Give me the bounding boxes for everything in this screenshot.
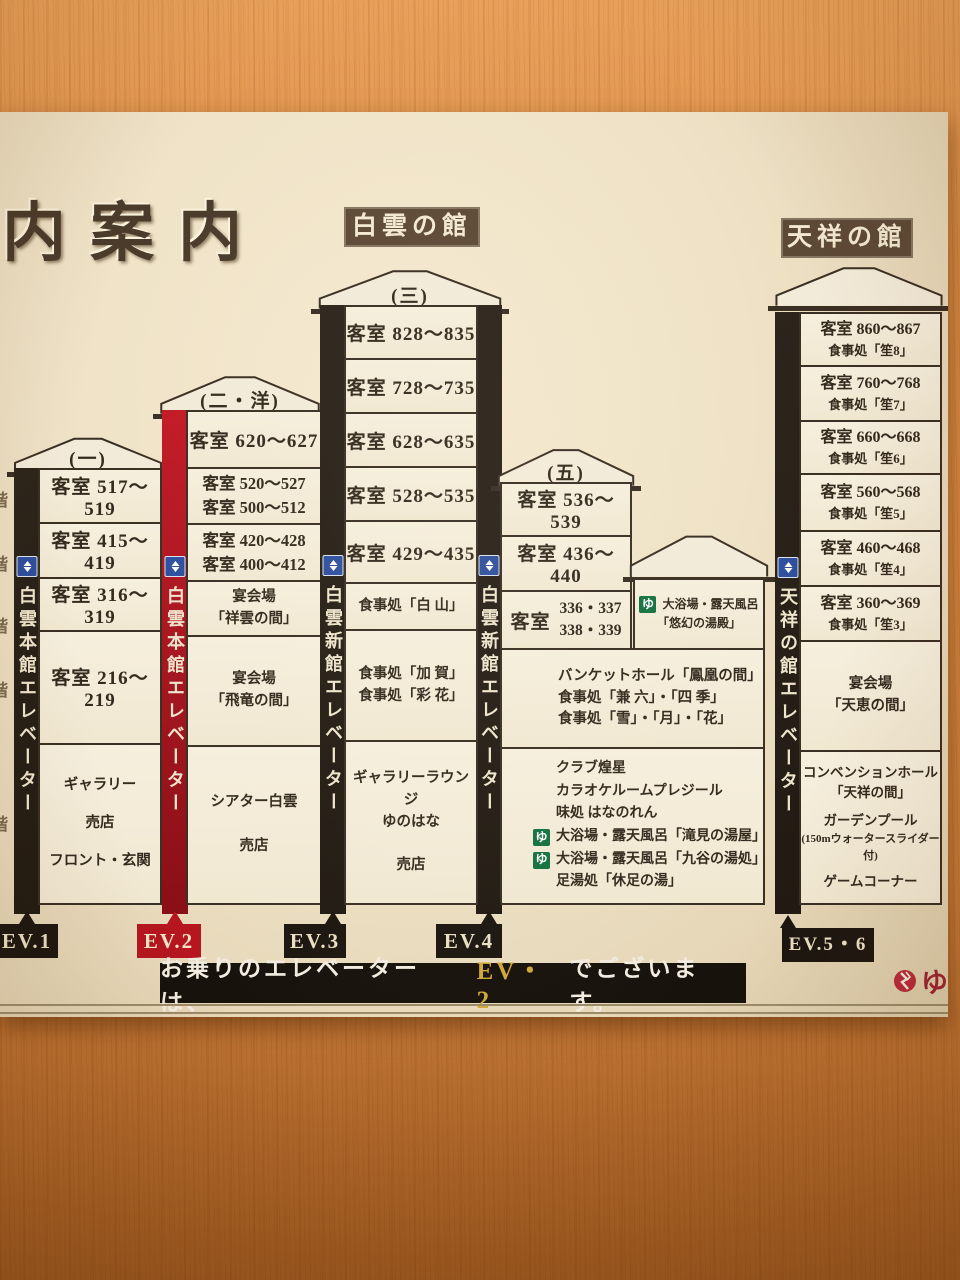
elevator-icon	[17, 556, 38, 577]
floor-box: 客室 860〜867 食事処「笙8」	[799, 312, 942, 367]
tower1-elevator-bar: 白雲本館エレベーター	[14, 468, 40, 914]
floor-box: 客室 660〜668 食事処「笙6」	[799, 420, 942, 475]
floor-text: 味処 はなのれん	[556, 803, 658, 826]
ev2-pointer	[167, 911, 183, 924]
floor-text: 客室 628〜635	[347, 427, 476, 454]
floor-text: 「祥雲の間」	[211, 609, 298, 631]
floor-text: 客室 360〜369	[820, 593, 920, 615]
floor-text: 食事処「笙7」	[828, 396, 913, 414]
floor-box: 客室 436〜440	[500, 535, 632, 592]
ev3-pointer	[325, 911, 341, 924]
floor-box: 宴会場 「天恵の間」	[799, 640, 942, 752]
tower3-elevator-bar-left: 白雲新館エレベーター	[320, 305, 346, 914]
floor-box: シアター白雲 売店	[186, 745, 322, 905]
floor-marker: 階	[0, 810, 8, 835]
floor-text: ギャラリー	[64, 775, 137, 797]
bath-icon: ゆ	[639, 596, 656, 613]
floor-text: 客室 728〜735	[347, 373, 476, 400]
floor-text: 客室 517〜519	[40, 472, 160, 521]
ev4-pointer	[481, 911, 497, 924]
floor-text: 客室 400〜412	[202, 553, 305, 577]
floor-box: ギャラリー 売店 フロント・玄関	[38, 743, 162, 905]
floor-text: 客室 316〜319	[40, 580, 160, 629]
amusement-section: クラブ煌星 カラオケルームプレジール 味処 はなのれん ゆ大浴場・露天風呂「滝見…	[500, 747, 765, 905]
tower3-roof-label: (三)	[316, 281, 504, 308]
building-badge-tensho: 天祥の館	[781, 218, 913, 258]
ev56-pointer	[780, 915, 796, 928]
floor-text: 客室 420〜428	[202, 529, 305, 553]
floor-text: 客室 560〜568	[820, 482, 920, 504]
floor-text: 売店	[240, 836, 269, 858]
floor-text: 「天恵の間」	[827, 696, 914, 718]
floor-box: 客室 520〜527 客室 500〜512	[186, 467, 322, 525]
floor-marker: 階	[0, 676, 8, 701]
floor-text: 食事処「兼 六」・「四 季」	[558, 688, 725, 710]
elevator-icon	[165, 556, 186, 577]
tower5-roof	[773, 264, 945, 307]
floor-box: 客室 620〜627	[186, 410, 322, 469]
tower1-roof-label: (一)	[12, 444, 164, 471]
floor-text: 大浴場・露天風呂「九谷の湯処」	[556, 849, 763, 872]
floor-text: 客室 828〜835	[347, 319, 476, 346]
floor-text: 客室 460〜468	[820, 538, 920, 560]
tower2-elevator-label: 白雲本館エレベーター	[162, 586, 188, 816]
floor-text: 売店	[397, 855, 426, 877]
floor-text: 食事処「雪」・「月」・「花」	[558, 709, 732, 731]
floor-box: 客室 560〜568 食事処「笙5」	[799, 473, 942, 532]
floor-text: バンケットホール「鳳凰の間」	[558, 666, 762, 688]
hotel-logo: ゆ	[892, 961, 948, 1000]
ev1-pointer	[19, 911, 35, 924]
elevator-icon	[778, 557, 799, 578]
tower2-roof-label: (二・洋)	[158, 386, 322, 413]
sign-bottom-edge	[0, 1004, 948, 1014]
floor-box: 客室 429〜435	[344, 520, 478, 584]
floor-text: 大浴場・露天風呂	[662, 595, 758, 614]
floor-marker: 階	[0, 550, 8, 575]
hotel-floor-guide-sign: 内案内 白雲の館 天祥の館 階 階 階 階 階 (一) 白雲本館エレベーター 客…	[0, 112, 948, 1017]
floor-text: 宴会場	[232, 587, 276, 609]
floor-marker: 階	[0, 612, 8, 637]
floor-text: クラブ煌星	[556, 758, 626, 781]
floor-text: 宴会場	[849, 674, 893, 696]
tower4-roof-label: (五)	[496, 458, 636, 485]
floor-text: 客室 620〜627	[190, 426, 319, 453]
floor-text: 売店	[86, 813, 115, 835]
floor-text: 客室 216〜219	[40, 663, 160, 712]
floor-text: 客室 760〜768	[820, 373, 920, 395]
banquet-section: バンケットホール「鳳凰の間」 食事処「兼 六」・「四 季」 食事処「雪」・「月」…	[500, 648, 765, 749]
floor-box: 客室 528〜535	[344, 466, 478, 522]
floor-text: 客室 500〜512	[202, 496, 305, 520]
floor-text: 足湯処「休足の湯」	[556, 871, 682, 894]
floor-box: 客室 828〜835	[344, 305, 478, 360]
floor-text: 食事処「笙8」	[828, 342, 913, 360]
floor-text: 大浴場・露天風呂「滝見の湯屋」	[556, 826, 763, 849]
ev56-badge: EV.5・6	[782, 928, 874, 962]
photo-wood-wall: 内案内 白雲の館 天祥の館 階 階 階 階 階 (一) 白雲本館エレベーター 客…	[0, 0, 960, 1280]
hotel-logo-text: ゆ	[921, 961, 948, 1000]
floor-text: フロント・玄関	[49, 851, 151, 873]
floor-box: 客室 415〜419	[38, 522, 162, 579]
tower2-roof: (二・洋)	[158, 373, 322, 415]
hotel-crest-icon	[892, 968, 918, 994]
floor-text: ギャラリーラウンジ	[346, 768, 476, 812]
tower3-elevator-label-left: 白雲新館エレベーター	[320, 585, 346, 815]
floor-text: 食事処「彩 花」	[358, 686, 463, 708]
floor-box: 客室 760〜768 食事処「笙7」	[799, 365, 942, 422]
floor-text: 客室 415〜419	[40, 526, 160, 575]
floor-marker: 階	[0, 486, 8, 511]
floor-box: 食事処「白 山」	[344, 582, 478, 631]
floor-text: 客室 436〜440	[502, 539, 630, 588]
floor-box: 宴会場 「飛竜の間」	[186, 635, 322, 747]
floor-text: 客室	[510, 607, 550, 634]
annex-bath-box: ゆ大浴場・露天風呂 「悠幻の湯殿」	[633, 578, 765, 650]
floor-box: 客室 460〜468 食事処「笙4」	[799, 530, 942, 587]
floor-text: 食事処「笙3」	[828, 616, 913, 634]
tower3-roof: (三)	[316, 267, 504, 310]
floor-text: 338・339	[560, 620, 622, 642]
floor-text: 客室 429〜435	[347, 539, 476, 566]
bath-icon: ゆ	[533, 852, 550, 869]
floor-box: 客室 628〜635	[344, 412, 478, 468]
elevator-notice-banner: お乗りのエレベーターは、 EV・2 でございます。	[160, 963, 746, 1003]
floor-text: カラオケルームプレジール	[556, 781, 723, 804]
floor-text: 客室 528〜535	[347, 481, 476, 508]
floor-text: 宴会場	[232, 669, 276, 691]
floor-text: 「悠幻の湯殿」	[657, 614, 741, 633]
floor-box: 客室 360〜369 食事処「笙3」	[799, 585, 942, 642]
annex-bath-roof	[628, 532, 770, 578]
tower5-elevator-label: 天祥の館エレベーター	[775, 587, 801, 817]
tower2-elevator-bar: 白雲本館エレベーター	[162, 410, 188, 914]
floor-box: 客室 316〜319	[38, 577, 162, 632]
floor-text: 食事処「白 山」	[358, 596, 463, 618]
floor-text: 食事処「加 賀」	[358, 664, 463, 686]
tower1-elevator-label: 白雲本館エレベーター	[14, 586, 40, 816]
floor-text: 食事処「笙6」	[828, 450, 913, 468]
floor-text: 客室 860〜867	[820, 319, 920, 341]
ev1-badge: EV.1	[0, 924, 58, 958]
floor-box: 宴会場 「祥雲の間」	[186, 580, 322, 637]
floor-text: ガーデンプール	[823, 811, 917, 831]
floor-text: 客室 520〜527	[202, 472, 305, 496]
floor-box: 客室 517〜519	[38, 468, 162, 524]
floor-text: 食事処「笙4」	[828, 561, 913, 579]
sign-title: 内案内	[2, 182, 266, 274]
floor-box: 客室 336・337 338・339	[500, 590, 632, 650]
floor-text: 客室 536〜539	[502, 485, 630, 534]
floor-text: 食事処「笙5」	[828, 505, 913, 523]
floor-text: 「天祥の間」	[830, 783, 911, 803]
floor-text: 「飛竜の間」	[211, 691, 298, 713]
elevator-icon	[323, 555, 344, 576]
floor-box: 客室 536〜539	[500, 482, 632, 537]
floor-text: シアター白雲	[211, 792, 298, 814]
floor-box: 食事処「加 賀」 食事処「彩 花」	[344, 629, 478, 742]
tower5-elevator-bar: 天祥の館エレベーター	[775, 312, 801, 914]
floor-box: 客室 420〜428 客室 400〜412	[186, 523, 322, 582]
floor-text: 客室 660〜668	[820, 427, 920, 449]
floor-box: ギャラリーラウンジ ゆのはな 売店	[344, 740, 478, 905]
floor-box: 客室 216〜219	[38, 630, 162, 745]
floor-text: ゆのはな	[382, 812, 440, 834]
floor-box: 客室 728〜735	[344, 358, 478, 414]
tower3-elevator-bar-right: 白雲新館エレベーター	[476, 305, 502, 914]
floor-text: ゲームコーナー	[823, 872, 917, 892]
elevator-icon	[479, 555, 500, 576]
building-badge-hakuun: 白雲の館	[344, 207, 480, 247]
floor-text: (150mウォータースライダー付)	[801, 831, 940, 864]
tower3-elevator-label-right: 白雲新館エレベーター	[476, 585, 502, 815]
bath-icon: ゆ	[533, 829, 550, 846]
floor-text: 336・337	[560, 598, 622, 620]
floor-box: コンベンションホール 「天祥の間」 ガーデンプール (150mウォータースライダ…	[799, 750, 942, 905]
floor-text: コンベンションホール	[803, 763, 938, 783]
tower4-roof: (五)	[496, 446, 636, 487]
